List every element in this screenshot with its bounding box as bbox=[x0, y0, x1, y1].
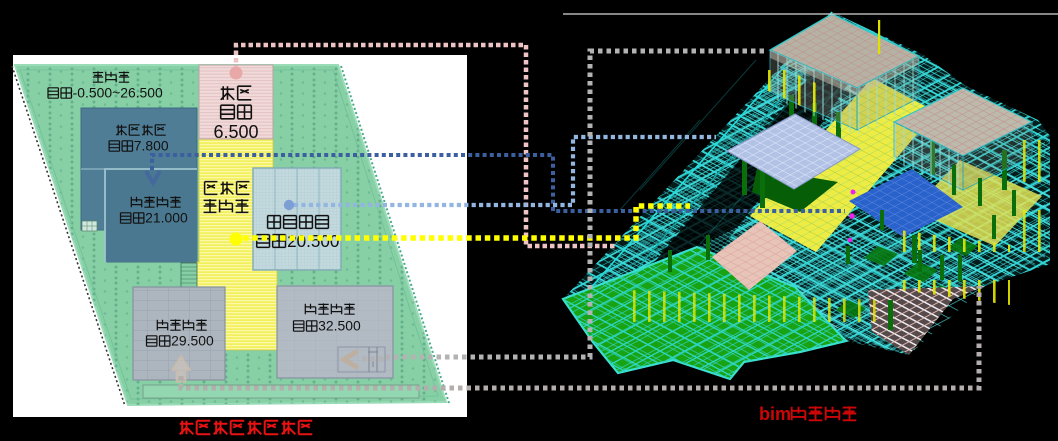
svg-text:6.500: 6.500 bbox=[213, 122, 258, 142]
svg-text:29.500: 29.500 bbox=[171, 333, 214, 349]
svg-text:32.500: 32.500 bbox=[318, 318, 361, 334]
svg-text:7.800: 7.800 bbox=[134, 138, 169, 154]
svg-text:21.000: 21.000 bbox=[145, 210, 188, 226]
svg-text:bim: bim bbox=[759, 404, 791, 424]
svg-text:20.500: 20.500 bbox=[287, 232, 339, 251]
svg-text:-0.500~26.500: -0.500~26.500 bbox=[73, 85, 163, 101]
